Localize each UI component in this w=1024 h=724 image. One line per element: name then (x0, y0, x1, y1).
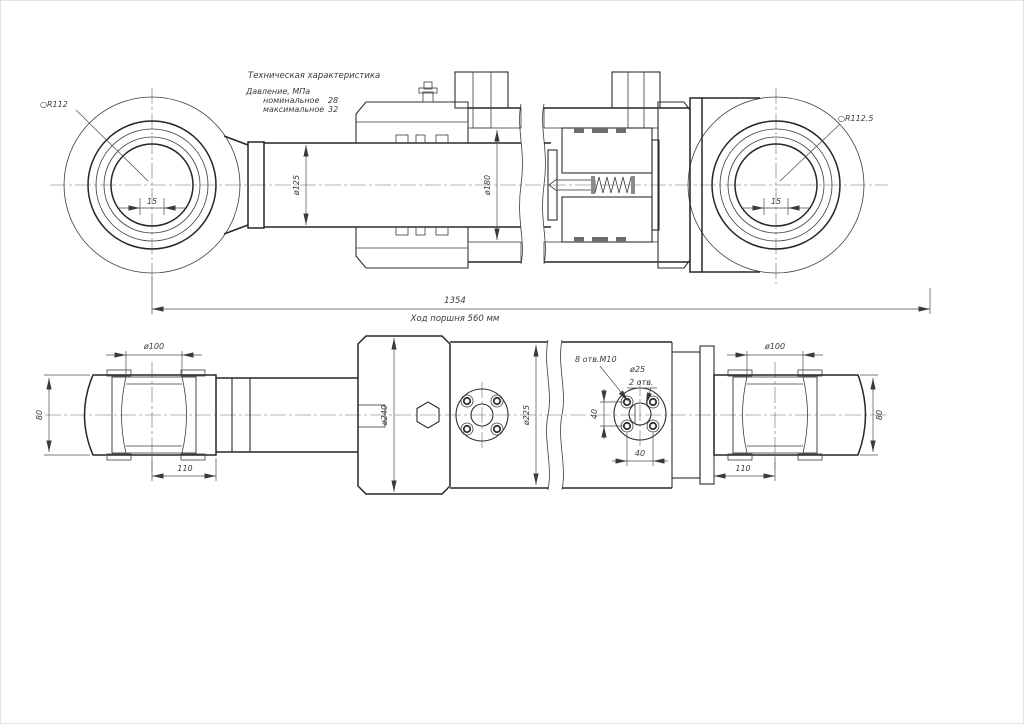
tech-specs-block: Техническая характеристика Давление, МПа… (245, 71, 380, 114)
label-port-hole-count: 2 отв. (629, 378, 653, 387)
dim-overall-length: 1354 (444, 296, 466, 306)
dim-bore-diameter: ø180 (483, 175, 492, 196)
dim-right-eye-width: 80 (875, 410, 884, 420)
dim-right-eye-bore: ø100 (764, 342, 785, 351)
dim-left-eye-pin-width: 15 (147, 197, 157, 206)
pressure-label: Давление, МПа (245, 87, 310, 96)
dim-left-eye-width: 80 (35, 410, 44, 420)
dim-right-eye-sphere-radius: ○R112.5 (838, 114, 873, 123)
bottom-view: ø100 ø100 80 80 110 (35, 336, 888, 494)
dim-left-eye-sphere-radius: ○R112 (40, 100, 68, 109)
top-section-view: ø125 ø180 15 15 1354 Ход поршня 560 мм (40, 72, 930, 324)
dim-bolt-spacing-v: 40 (590, 409, 599, 419)
drawing-sheet: ø125 ø180 15 15 1354 Ход поршня 560 мм (0, 0, 1024, 724)
dim-bolt-spacing-h: 40 (635, 449, 645, 458)
gland-assembly (356, 82, 468, 268)
dim-left-eye-bore: ø100 (143, 342, 164, 351)
nominal-label: номинальное (263, 96, 319, 105)
bleed-screw (419, 82, 437, 102)
dim-rod-diameter: ø125 (292, 175, 301, 196)
port-boss-front (455, 72, 508, 128)
dim-right-eye-offset: 110 (735, 464, 750, 473)
dim-gland-diameter: ø240 (380, 405, 389, 426)
nominal-value: 28 (328, 96, 338, 105)
port-boss-rear (612, 72, 660, 128)
label-port-hole-diameter: ø25 (629, 365, 645, 374)
tech-specs-title: Техническая характеристика (248, 71, 380, 81)
dim-left-eye-offset: 110 (177, 464, 192, 473)
note-piston-stroke: Ход поршня 560 мм (410, 314, 500, 324)
label-bolt-holes: 8 отв.M10 (575, 355, 617, 364)
hydraulic-cylinder-drawing: ø125 ø180 15 15 1354 Ход поршня 560 мм (0, 0, 1024, 724)
dim-right-eye-pin-width: 15 (771, 197, 781, 206)
dim-tube-diameter: ø225 (522, 405, 531, 426)
max-value: 32 (328, 105, 338, 114)
max-label: максимальное (263, 105, 324, 114)
